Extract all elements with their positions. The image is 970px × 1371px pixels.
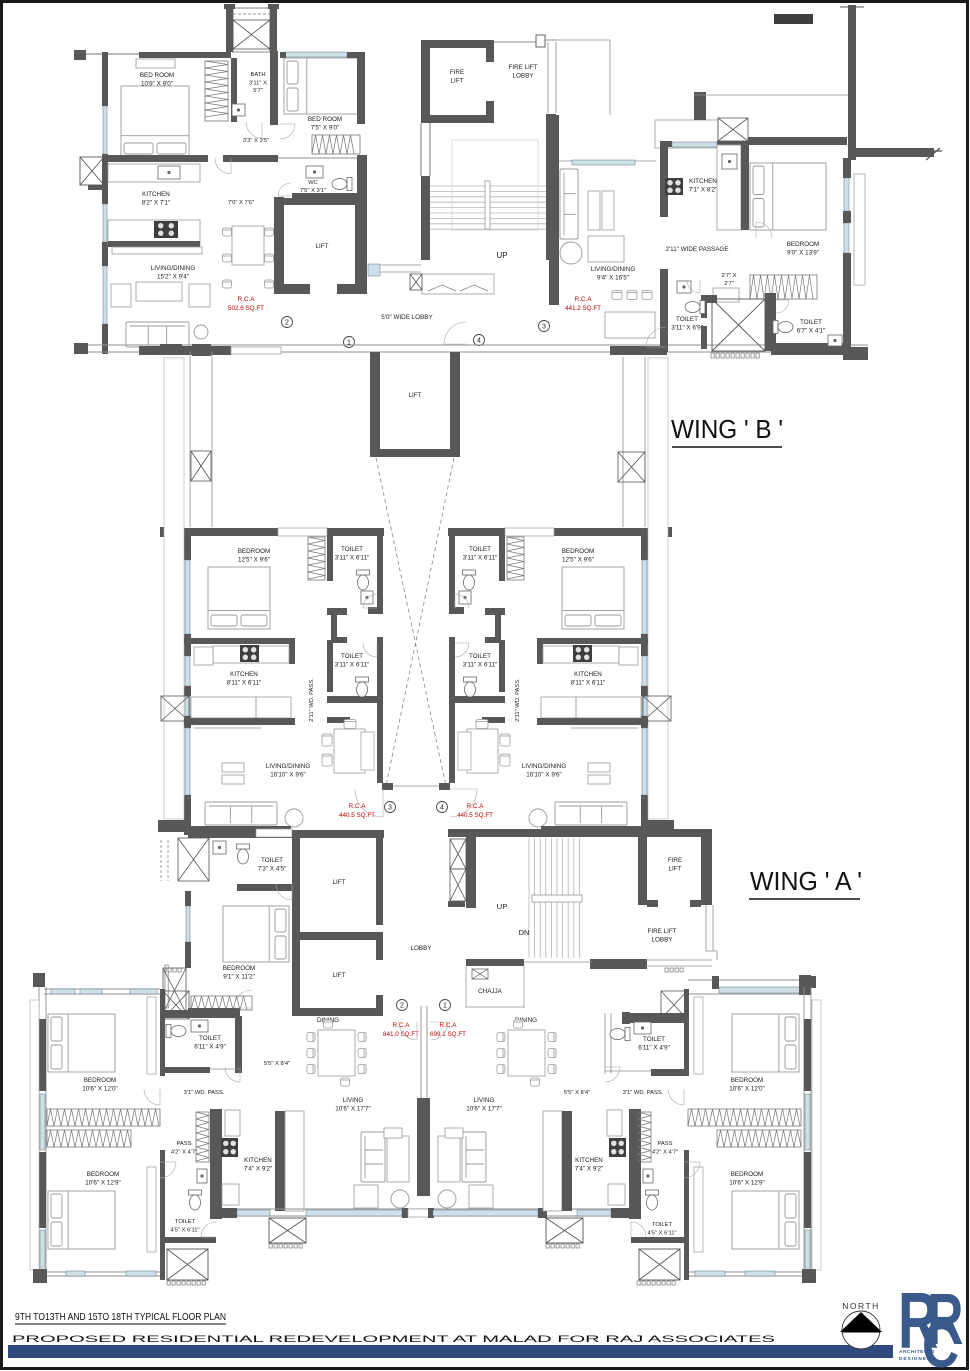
svg-text:LIFT: LIFT [451, 78, 464, 85]
svg-text:R.C.A: R.C.A [393, 1022, 411, 1029]
svg-text:BEDROOM: BEDROOM [731, 1171, 764, 1178]
svg-text:5'5" X 8'4": 5'5" X 8'4" [564, 1090, 590, 1096]
svg-text:ARCHITECTS: ARCHITECTS [899, 1349, 935, 1355]
svg-text:BED ROOM: BED ROOM [140, 72, 174, 79]
svg-text:LIVING/DINING: LIVING/DINING [591, 266, 636, 273]
svg-text:LIVING: LIVING [343, 1097, 364, 1104]
svg-text:4: 4 [440, 805, 444, 812]
svg-text:WC: WC [308, 180, 318, 186]
svg-text:WING ' A ': WING ' A ' [750, 866, 862, 896]
svg-text:LIFT: LIFT [333, 879, 346, 886]
svg-text:LOBBY: LOBBY [513, 73, 535, 80]
svg-text:8'11" X 6'11": 8'11" X 6'11" [571, 680, 606, 687]
svg-text:10'6" X 12'0": 10'6" X 12'0" [82, 1086, 118, 1093]
svg-text:9TH TO13TH AND 15TO 18TH TYPIC: 9TH TO13TH AND 15TO 18TH TYPICAL FLOOR P… [15, 1311, 226, 1323]
svg-text:LIFT: LIFT [316, 243, 329, 250]
svg-text:R.C.A: R.C.A [575, 296, 593, 303]
svg-text:LIFT: LIFT [333, 972, 346, 979]
svg-text:BEDROOM: BEDROOM [84, 1077, 117, 1084]
svg-text:R.C.A: R.C.A [467, 803, 485, 810]
svg-text:TOILET: TOILET [652, 1222, 673, 1228]
svg-text:2'11" WD. PASS.: 2'11" WD. PASS. [515, 678, 521, 722]
svg-text:UP: UP [497, 902, 507, 911]
svg-text:LIVING: LIVING [474, 1097, 495, 1104]
svg-text:TOILET: TOILET [341, 546, 363, 553]
svg-text:LIFT: LIFT [669, 866, 682, 873]
svg-text:KITCHEN: KITCHEN [689, 178, 717, 185]
svg-text:841.0 SQ.FT: 841.0 SQ.FT [383, 1031, 419, 1038]
svg-text:FIRE LIFT: FIRE LIFT [508, 64, 537, 71]
svg-text:10'6" X 12'0": 10'6" X 12'0" [729, 1086, 765, 1093]
svg-text:R.C.A: R.C.A [440, 1022, 458, 1029]
svg-text:FIRE: FIRE [668, 857, 682, 864]
svg-text:6'7" X 4'1": 6'7" X 4'1" [797, 328, 826, 335]
svg-text:9'1" X 11'2": 9'1" X 11'2" [223, 974, 255, 981]
svg-text:4'5" X 6'11": 4'5" X 6'11" [647, 1231, 676, 1237]
svg-text:3'11" X 6'11": 3'11" X 6'11" [463, 555, 498, 562]
svg-text:2: 2 [285, 320, 289, 327]
svg-text:TOILET: TOILET [643, 1036, 665, 1043]
svg-text:3'11" X 6'11": 3'11" X 6'11" [463, 662, 498, 669]
svg-text:441.2 SQ.FT: 441.2 SQ.FT [565, 305, 601, 312]
svg-text:8'11" X 6'11": 8'11" X 6'11" [227, 680, 262, 687]
svg-text:BEDROOM: BEDROOM [562, 548, 595, 555]
svg-text:2: 2 [400, 1003, 404, 1010]
svg-text:4'2" X 4'7": 4'2" X 4'7" [171, 1150, 197, 1156]
svg-text:4: 4 [477, 338, 481, 345]
svg-text:PASS: PASS [176, 1141, 191, 1147]
svg-text:2'7" X: 2'7" X [721, 273, 736, 279]
svg-text:3'11" X 6'11": 3'11" X 6'11" [335, 555, 370, 562]
svg-text:10'6" X 17'7": 10'6" X 17'7" [335, 1106, 371, 1113]
svg-text:4'2" X 4'7": 4'2" X 4'7" [652, 1150, 678, 1156]
svg-text:TOILET: TOILET [676, 316, 698, 323]
svg-text:12'5" X 9'6": 12'5" X 9'6" [562, 557, 594, 564]
svg-text:10'6" X 17'7": 10'6" X 17'7" [466, 1106, 502, 1113]
svg-text:7'4" X 9'2": 7'4" X 9'2" [244, 1166, 273, 1173]
svg-text:15'2" X 9'4": 15'2" X 9'4" [157, 274, 189, 281]
svg-text:TOILET: TOILET [175, 1219, 196, 1225]
svg-text:LIVING/DINING: LIVING/DINING [266, 763, 311, 770]
svg-text:BATH: BATH [250, 72, 265, 78]
svg-text:10'6" X 12'9": 10'6" X 12'9" [729, 1180, 765, 1187]
svg-text:7'3" X 4'5": 7'3" X 4'5" [258, 866, 287, 873]
svg-text:699.1 SQ.FT: 699.1 SQ.FT [430, 1031, 466, 1038]
svg-text:PROPOSED RESIDENTIAL REDEVEL: PROPOSED RESIDENTIAL REDEVELOPMENT AT MA… [12, 1334, 775, 1344]
svg-text:5'0" WIDE LOBBY: 5'0" WIDE LOBBY [381, 314, 433, 321]
svg-text:DN: DN [519, 928, 530, 937]
svg-text:3: 3 [388, 805, 392, 812]
svg-text:BEDROOM: BEDROOM [731, 1077, 764, 1084]
svg-text:3: 3 [542, 324, 546, 331]
svg-text:2'11" WIDE PASSAGE: 2'11" WIDE PASSAGE [665, 246, 728, 253]
svg-text:16'10" X 9'6": 16'10" X 9'6" [270, 772, 306, 779]
svg-text:KITCHEN: KITCHEN [244, 1157, 272, 1164]
svg-text:WING ' B ': WING ' B ' [671, 414, 783, 444]
svg-text:440.5 SQ.FT: 440.5 SQ.FT [339, 812, 375, 819]
svg-text:10'6" X 12'9": 10'6" X 12'9" [85, 1180, 121, 1187]
svg-text:TOILET: TOILET [800, 319, 822, 326]
svg-text:BEDROOM: BEDROOM [238, 548, 271, 555]
svg-text:1: 1 [443, 1003, 447, 1010]
svg-text:TOILET: TOILET [261, 857, 283, 864]
svg-text:LIVING/DINING: LIVING/DINING [151, 265, 196, 272]
svg-text:CHAJJA: CHAJJA [478, 988, 503, 995]
svg-text:TOILET: TOILET [469, 546, 491, 553]
svg-text:NORTH: NORTH [842, 1301, 880, 1311]
svg-text:9'4" X 16'5": 9'4" X 16'5" [597, 275, 629, 282]
svg-text:LIVING/DINING: LIVING/DINING [522, 763, 567, 770]
svg-text:12'5" X 9'6": 12'5" X 9'6" [238, 557, 270, 564]
svg-text:3'11" X 6'9": 3'11" X 6'9" [671, 325, 703, 332]
svg-text:8'2" X 7'1": 8'2" X 7'1" [142, 200, 171, 207]
svg-text:3'3" X 3'5": 3'3" X 3'5" [243, 138, 269, 144]
svg-text:2'11" WD. PASS.: 2'11" WD. PASS. [309, 678, 315, 722]
svg-text:3'1" WD. PASS.: 3'1" WD. PASS. [184, 1090, 225, 1096]
svg-text:3'11" X: 3'11" X [249, 81, 267, 87]
svg-text:BEDROOM: BEDROOM [87, 1171, 120, 1178]
svg-text:TOILET: TOILET [469, 653, 491, 660]
svg-text:7'5" X 9'0": 7'5" X 9'0" [311, 125, 340, 132]
svg-text:KITCHEN: KITCHEN [230, 671, 258, 678]
svg-text:BEDROOM: BEDROOM [223, 965, 256, 972]
svg-text:7'4" X 9'2": 7'4" X 9'2" [575, 1166, 604, 1173]
svg-text:6'11" X 4'9": 6'11" X 4'9" [638, 1045, 670, 1052]
svg-text:FIRE: FIRE [450, 69, 464, 76]
svg-text:PASS: PASS [657, 1141, 672, 1147]
svg-text:LIFT: LIFT [409, 392, 422, 399]
svg-text:4'5" X 6'11": 4'5" X 6'11" [170, 1228, 199, 1234]
svg-text:BEDROOM: BEDROOM [787, 241, 820, 248]
svg-text:UP: UP [496, 251, 507, 260]
svg-text:3'11" X 6'11": 3'11" X 6'11" [335, 662, 370, 669]
svg-text:BED ROOM: BED ROOM [308, 116, 342, 123]
svg-text:3'1" WD. PASS.: 3'1" WD. PASS. [623, 1090, 664, 1096]
svg-text:502.6 SQ.FT: 502.6 SQ.FT [228, 305, 264, 312]
svg-text:FIRE LIFT: FIRE LIFT [647, 928, 676, 935]
svg-text:R.C.A: R.C.A [238, 296, 256, 303]
svg-text:2'7": 2'7" [724, 281, 734, 287]
svg-text:DESIGNERS: DESIGNERS [899, 1356, 935, 1362]
svg-text:16'10" X 9'6": 16'10" X 9'6" [526, 772, 562, 779]
svg-text:7'1" X 8'2": 7'1" X 8'2" [689, 187, 718, 194]
svg-text:LOBBY: LOBBY [652, 937, 674, 944]
svg-text:LOBBY: LOBBY [411, 945, 433, 952]
svg-text:6'11" X 4'9": 6'11" X 4'9" [194, 1044, 226, 1051]
svg-text:7'0" X 7'6": 7'0" X 7'6" [228, 200, 254, 206]
svg-text:TOILET: TOILET [199, 1035, 221, 1042]
svg-text:5'7": 5'7" [253, 88, 263, 94]
svg-text:KITCHEN: KITCHEN [575, 1157, 603, 1164]
svg-text:440.5 SQ.FT: 440.5 SQ.FT [457, 812, 493, 819]
svg-text:5'5" X 8'4": 5'5" X 8'4" [264, 1061, 290, 1067]
svg-text:9'0" X 13'9": 9'0" X 13'9" [787, 250, 819, 257]
svg-text:KITCHEN: KITCHEN [574, 671, 602, 678]
svg-text:TOILET: TOILET [341, 653, 363, 660]
svg-text:KITCHEN: KITCHEN [142, 191, 170, 198]
